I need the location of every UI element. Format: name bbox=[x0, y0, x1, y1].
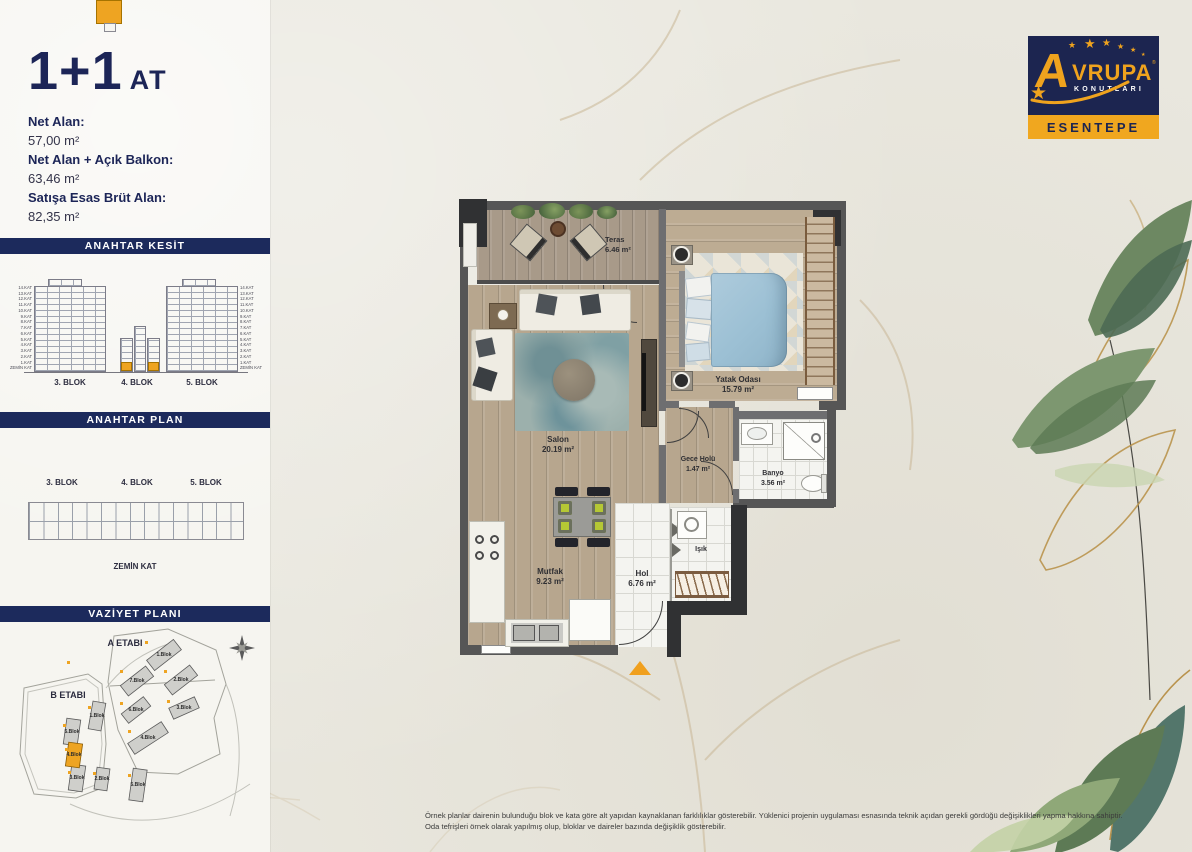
stage-label-b: B ETABI bbox=[38, 690, 98, 700]
room-label-isik: Işık bbox=[673, 545, 729, 555]
site-block-label: 5.Blok bbox=[57, 729, 87, 735]
building-elevation-4blok bbox=[134, 326, 146, 372]
site-block-label: 4.Blok bbox=[133, 735, 163, 741]
stove-burner bbox=[490, 535, 499, 544]
room-label-yatak-odasi: Yatak Odası15.79 m² bbox=[683, 375, 793, 394]
coffee-table bbox=[553, 359, 595, 401]
compass-icon bbox=[229, 635, 255, 661]
disclaimer-line: Örnek planlar dairenin bulunduğu blok ve… bbox=[425, 810, 1125, 821]
sofa-pillow bbox=[535, 293, 557, 315]
area-label: Net Alan: bbox=[28, 112, 173, 131]
pillow bbox=[685, 321, 711, 342]
room-label-mutfak: Mutfak9.23 m² bbox=[517, 567, 583, 586]
floor-labels-left: 14.KAT13.KAT12.KAT11.KAT10.KAT9.KAT8.KAT… bbox=[6, 285, 32, 371]
tv-screen bbox=[642, 353, 646, 411]
site-block-label-highlighted: 4.Blok bbox=[59, 752, 89, 758]
pillow bbox=[685, 275, 713, 298]
unit-size: 1+1 bbox=[28, 40, 123, 102]
wall bbox=[460, 247, 468, 649]
block-label: 5. BLOK bbox=[168, 378, 236, 387]
section-header-anahtar-plan: ANAHTAR PLAN bbox=[0, 412, 270, 428]
info-sidebar: 1+1 AT Net Alan: 57,00 m² Net Alan + Açı… bbox=[0, 0, 270, 852]
plant bbox=[511, 205, 535, 219]
highlighted-floor bbox=[121, 362, 132, 371]
dining-chair bbox=[587, 487, 610, 496]
section-header-anahtar-kesit: ANAHTAR KESİT bbox=[0, 238, 270, 254]
site-block-label: 6.Blok bbox=[121, 707, 151, 713]
sofa-pillow bbox=[475, 337, 495, 357]
floor-name-label: ZEMİN KAT bbox=[100, 562, 170, 571]
sink-bowl bbox=[539, 625, 559, 641]
shower-head bbox=[811, 433, 821, 443]
stove-burner bbox=[490, 551, 499, 560]
highlighted-floor bbox=[148, 362, 159, 371]
disclaimer-line: Oda tefrişleri örnek olarak yapılmış olu… bbox=[425, 821, 1125, 832]
logo-swoosh bbox=[1028, 36, 1159, 115]
bed-headboard bbox=[679, 271, 685, 367]
coffee-cup bbox=[497, 309, 509, 321]
pillow bbox=[685, 342, 710, 362]
chair-cushion bbox=[558, 501, 572, 515]
washing-machine-drum bbox=[684, 517, 699, 532]
dining-chair bbox=[587, 538, 610, 547]
dining-chair bbox=[555, 538, 578, 547]
section-header-vaziyet-plani: VAZİYET PLANI bbox=[0, 606, 270, 622]
brochure-page: 1+1 AT Net Alan: 57,00 m² Net Alan + Açı… bbox=[0, 0, 1192, 852]
wall bbox=[665, 401, 679, 408]
window-line bbox=[477, 280, 659, 284]
site-block-label: 2.Blok bbox=[166, 677, 196, 683]
area-label: Net Alan + Açık Balkon: bbox=[28, 150, 173, 169]
bedroom-window bbox=[797, 387, 833, 400]
chair-cushion bbox=[592, 501, 606, 515]
sofa-pillow bbox=[580, 294, 601, 315]
wall bbox=[739, 411, 827, 419]
terrace-table bbox=[550, 221, 566, 237]
room-label-banyo: Banyo3.56 m² bbox=[747, 469, 799, 488]
room-label-salon: Salon20.19 m² bbox=[513, 435, 603, 454]
site-block-label: 1.Blok bbox=[82, 713, 112, 719]
block-label: 4. BLOK bbox=[112, 478, 162, 487]
site-block-label: 1.Blok bbox=[149, 652, 179, 658]
plant bbox=[597, 206, 617, 219]
chair-cushion bbox=[558, 519, 572, 533]
stove-burner bbox=[475, 535, 484, 544]
kitchen-counter bbox=[469, 521, 505, 623]
coat-rack bbox=[675, 571, 729, 598]
wall bbox=[709, 401, 735, 408]
unit-code: AT bbox=[130, 65, 168, 96]
chair-cushion bbox=[592, 519, 606, 533]
wall bbox=[733, 499, 834, 508]
ground-line bbox=[24, 372, 248, 373]
bed-duvet bbox=[711, 273, 787, 367]
site-block-label: 3.Blok bbox=[169, 705, 199, 711]
floor-plan: Teras6.46 m² Yatak Odası15.79 m² Salon20… bbox=[453, 193, 855, 681]
kitchen-appliance bbox=[569, 599, 611, 641]
entrance-arrow-icon bbox=[629, 661, 651, 675]
pillow bbox=[685, 298, 713, 320]
block-label: 4. BLOK bbox=[114, 378, 160, 387]
wall bbox=[827, 407, 836, 507]
floor-label: ZEMİN KAT bbox=[240, 365, 266, 371]
block-label: 5. BLOK bbox=[174, 478, 238, 487]
wall bbox=[733, 489, 739, 503]
wardrobe bbox=[805, 217, 835, 385]
highlighted-unit bbox=[96, 0, 122, 24]
stove-burner bbox=[475, 551, 484, 560]
wall bbox=[731, 505, 747, 615]
sink-bowl bbox=[513, 625, 535, 641]
wall bbox=[659, 209, 666, 411]
area-info: Net Alan: 57,00 m² Net Alan + Açık Balko… bbox=[28, 112, 173, 226]
sink-basin bbox=[747, 427, 767, 440]
floor-label: ZEMİN KAT bbox=[6, 365, 32, 371]
disclaimer: Örnek planlar dairenin bulunduğu blok ve… bbox=[425, 810, 1125, 832]
area-value: 82,35 m² bbox=[28, 207, 173, 226]
building-elevation-5blok bbox=[166, 286, 238, 372]
dining-chair bbox=[555, 487, 578, 496]
floor-labels-right: 14.KAT13.KAT12.KAT11.KAT10.KAT9.KAT8.KAT… bbox=[240, 285, 266, 371]
strip-notch bbox=[104, 23, 116, 32]
area-value: 63,46 m² bbox=[28, 169, 173, 188]
building-elevation-3blok bbox=[34, 286, 106, 372]
toilet-tank bbox=[821, 474, 827, 493]
wall bbox=[667, 613, 681, 657]
terrace-sill bbox=[463, 223, 477, 267]
nightstand-lamp bbox=[675, 248, 688, 261]
site-block-label: 3.Blok bbox=[62, 775, 92, 781]
page-title: 1+1 AT bbox=[28, 40, 168, 102]
plant bbox=[569, 204, 593, 219]
plant bbox=[539, 203, 565, 219]
project-name-banner: ESENTEPE bbox=[1028, 115, 1159, 139]
stage-label-a: A ETABI bbox=[95, 638, 155, 648]
site-block-label: 7.Blok bbox=[122, 678, 152, 684]
room-label-teras: Teras6.46 m² bbox=[605, 235, 659, 254]
room-label-hol: Hol6.76 m² bbox=[613, 569, 671, 588]
area-value: 57,00 m² bbox=[28, 131, 173, 150]
block-label: 3. BLOK bbox=[36, 378, 104, 387]
site-block-label: 5.Blok bbox=[123, 782, 153, 788]
area-label: Satışa Esas Brüt Alan: bbox=[28, 188, 173, 207]
brand-logo: ★ ★ ★ ★ ★ ★ ★ A VRUPA ® KONUTLARI bbox=[1028, 36, 1159, 115]
block-label: 3. BLOK bbox=[30, 478, 94, 487]
room-label-gece-holu: Gece Holü1.47 m² bbox=[665, 455, 731, 474]
wall bbox=[659, 445, 666, 503]
leaf-decoration bbox=[960, 140, 1192, 852]
floor-strip bbox=[28, 502, 244, 540]
